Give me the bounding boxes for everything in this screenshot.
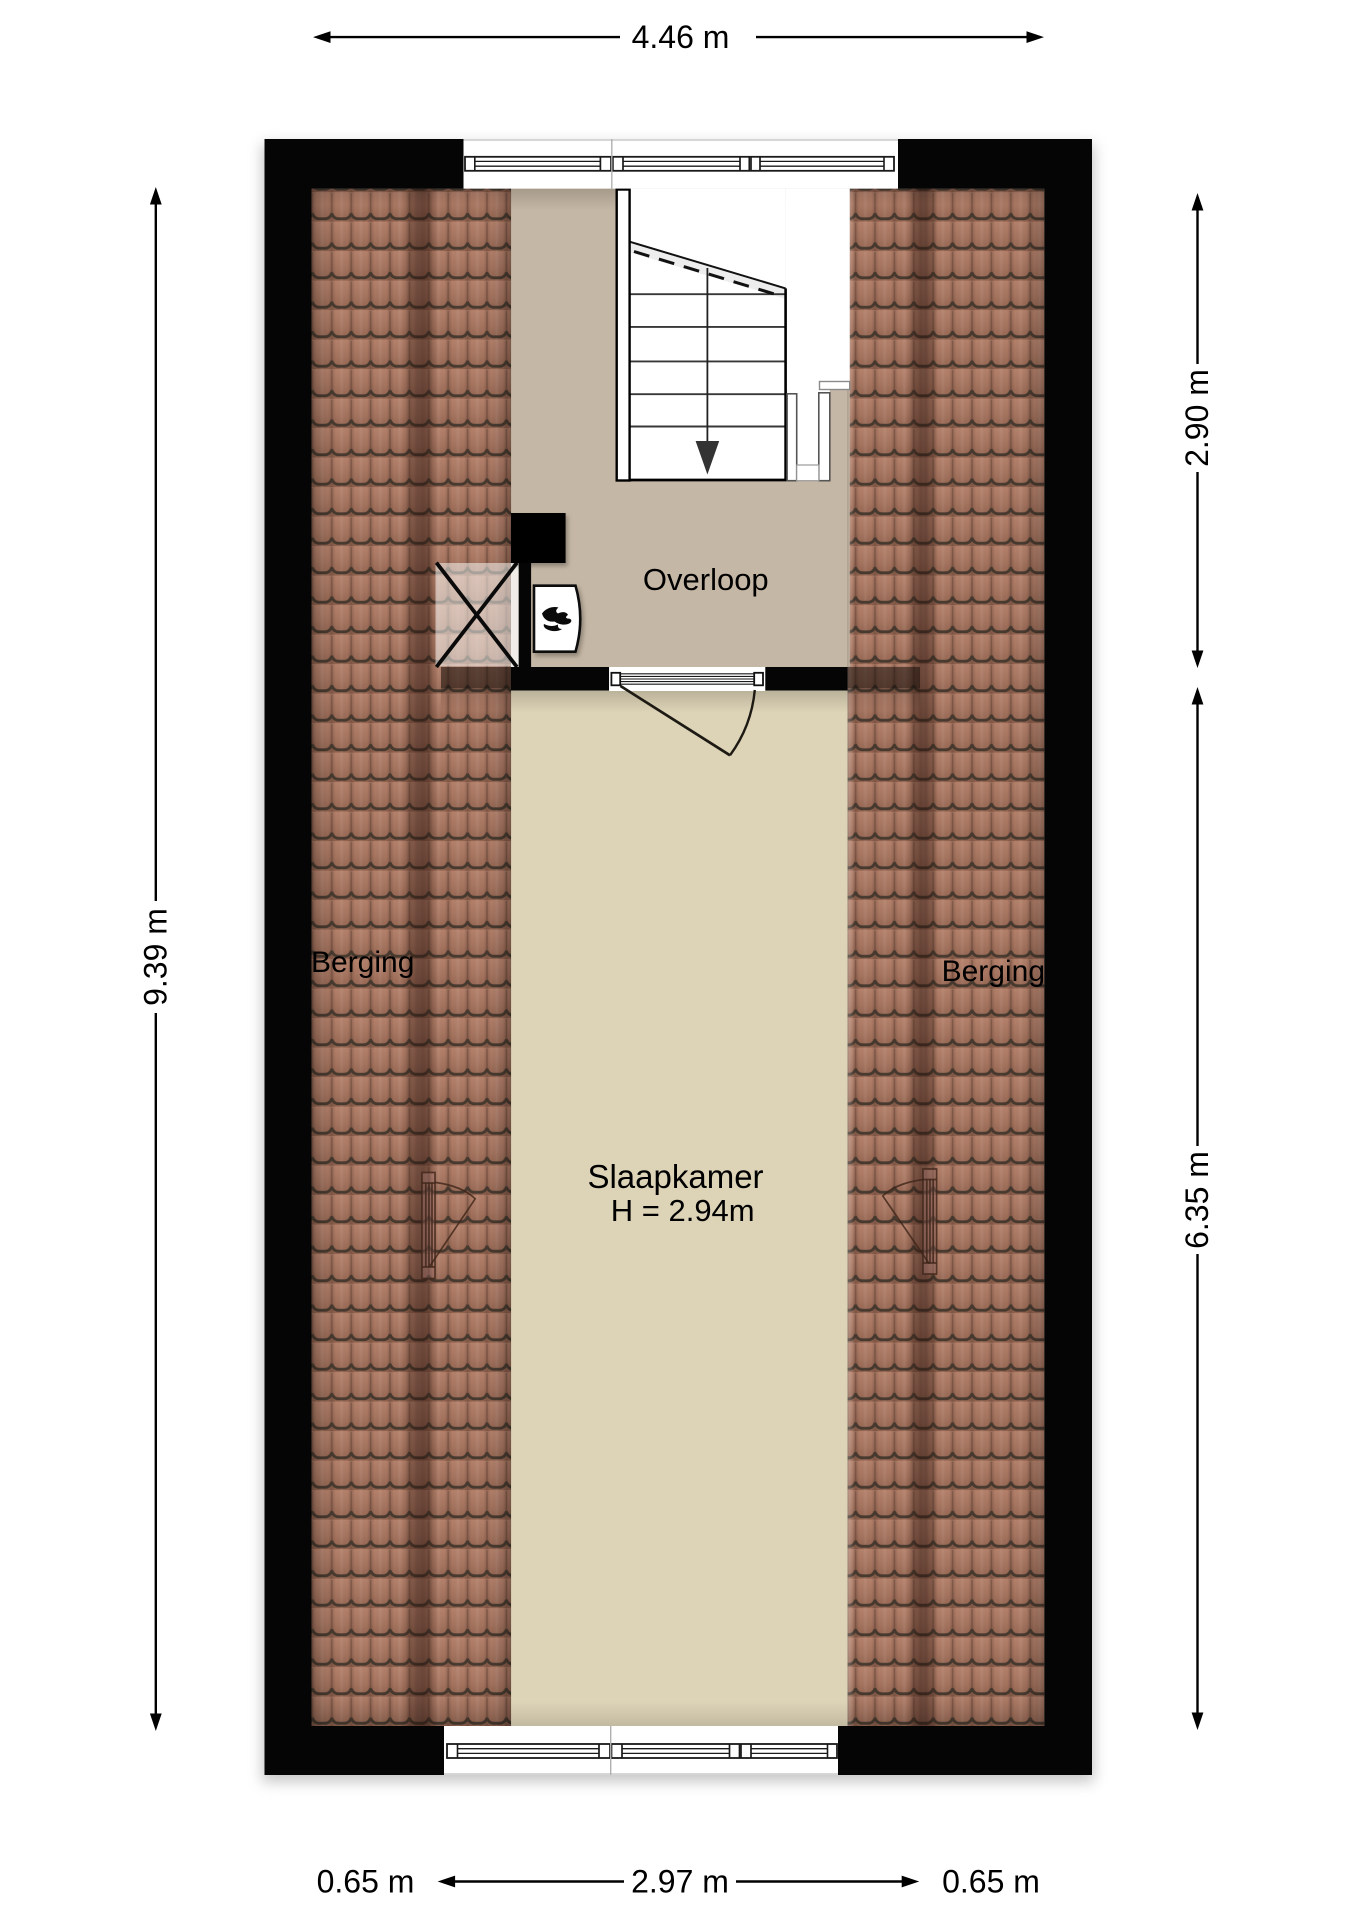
svg-text:Overloop: Overloop bbox=[643, 562, 769, 597]
svg-text:Slaapkamer: Slaapkamer bbox=[587, 1158, 763, 1195]
svg-text:0.65 m: 0.65 m bbox=[317, 1864, 415, 1900]
svg-text:9.39 m: 9.39 m bbox=[138, 908, 174, 1006]
svg-text:Berging: Berging bbox=[942, 955, 1045, 988]
svg-text:2.97 m: 2.97 m bbox=[631, 1864, 729, 1900]
svg-text:6.35 m: 6.35 m bbox=[1179, 1151, 1215, 1249]
svg-text:Berging: Berging bbox=[311, 946, 414, 979]
svg-text:2.90 m: 2.90 m bbox=[1179, 369, 1215, 467]
svg-text:0.65 m: 0.65 m bbox=[942, 1864, 1040, 1900]
svg-text:H = 2.94m: H = 2.94m bbox=[611, 1193, 755, 1228]
svg-text:4.46 m: 4.46 m bbox=[632, 19, 730, 55]
